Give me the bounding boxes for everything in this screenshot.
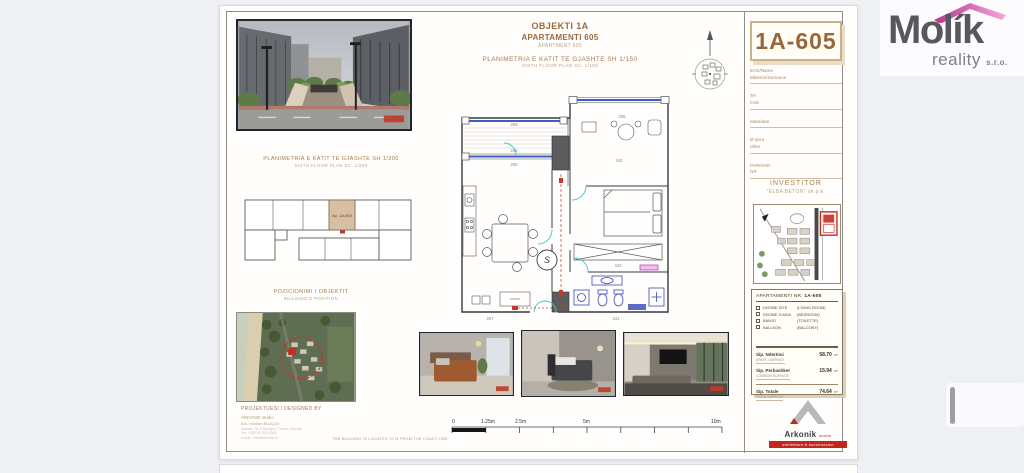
arkonik-banner: arkitekture & konstruksion [769, 441, 847, 448]
main-floor-plan: S [456, 94, 676, 336]
titleblock-divider [744, 12, 745, 453]
checkbox[interactable] [756, 306, 760, 310]
scale-bar: 0 1.25m 2.5m 5m 10m [451, 413, 723, 439]
svg-text:342: 342 [615, 263, 623, 268]
card-divider [756, 384, 838, 385]
checkbox[interactable] [756, 312, 760, 316]
svg-text:256: 256 [511, 162, 519, 167]
svg-text:255: 255 [619, 114, 627, 119]
surface-row-common: Sip. Perbashket COMMON SURFACE 15.94m² [756, 368, 838, 380]
apartment-title: APARTAMENTI 605 [440, 33, 680, 42]
form-field-name[interactable]: Emri/Name Mbiemri/Surname [750, 68, 842, 84]
sheet-header: OBJEKTI 1A APARTAMENTI 605 APARTMENT 605… [440, 21, 680, 69]
room-row-living: DHOME DITE (LIVING ROOM) [756, 305, 838, 310]
viewer-background: PLANIMETRIA E KATIT TE GJASHTE SH 1/200 … [0, 0, 1024, 472]
form-field-other[interactable]: të tjera other [750, 137, 842, 153]
checkbox[interactable] [756, 325, 760, 329]
svg-text:256: 256 [511, 148, 519, 153]
form-field-date[interactable]: data/date [750, 119, 842, 129]
svg-text:2.5m: 2.5m [515, 419, 526, 425]
surface-row-apartment: Sip. Ndertimi APART. SURFACE 58.70m² [756, 352, 838, 364]
svg-text:257: 257 [487, 316, 495, 321]
floating-panel [946, 383, 1024, 427]
svg-text:10m: 10m [711, 419, 721, 425]
keyplan-drawing: Ap. 1A-605 [241, 192, 417, 270]
svg-text:341: 341 [613, 316, 621, 321]
room-row-toilette: BANJO (TOILETTE) [756, 318, 838, 323]
drawing-sheet: PLANIMETRIA E KATIT TE GJASHTE SH 1/200 … [219, 5, 858, 460]
keyplan-title: PLANIMETRIA E KATIT TE GJASHTE SH 1/200 … [226, 156, 436, 168]
interior-photo-bedroom-2 [521, 330, 616, 397]
room-row-bedroom: DHOME GJUMI (BEDROOM) [756, 312, 838, 317]
interior-photo-bedroom-1 [419, 332, 514, 396]
unit-code-tag: 1A-605 [750, 21, 842, 61]
keyplan-unit-label: Ap. 1A-605 [332, 213, 353, 218]
project-title: OBJEKTI 1A [440, 21, 680, 31]
position-title: POZICIONIMI I OBJEKTIT BUILDING'S POSITI… [236, 289, 386, 301]
investor-site-plan [753, 204, 841, 284]
svg-text:342: 342 [616, 158, 624, 163]
room-row-balcony: BALLKON (BALCONY) [756, 325, 838, 330]
svg-text:1.25m: 1.25m [481, 419, 495, 425]
checkbox[interactable] [756, 319, 760, 323]
north-arrow-icon [690, 28, 730, 98]
interior-photo-living-room [623, 332, 729, 396]
form-field-parking[interactable]: PARKING NR [750, 163, 842, 179]
satellite-image [236, 312, 356, 402]
client-form: Emri/Name Mbiemri/Surname Tel mob data/d… [750, 68, 842, 179]
card-title: APARTAMENTI NR. 1A-605 [756, 294, 838, 302]
svg-text:0: 0 [452, 419, 455, 425]
building-render-photo [236, 19, 412, 131]
scrollbar-thumb[interactable] [950, 387, 955, 424]
arkonik-triangle-icon [788, 399, 828, 425]
arkonik-logo: Arkonik studio arkitekture & konstruksio… [769, 399, 847, 448]
form-field-tel[interactable]: Tel mob [750, 93, 842, 109]
investor-block: INVESTITOR “ELBA BETON” sh.p.k. [747, 180, 845, 195]
svg-text:259: 259 [511, 122, 519, 127]
molik-reality-logo: Molík reality s.r.o. [880, 0, 1024, 76]
card-divider [756, 346, 838, 348]
apartment-data-card: APARTAMENTI NR. 1A-605 DHOME DITE (LIVIN… [751, 289, 843, 395]
plan-symbol-s: S [544, 255, 550, 265]
svg-text:5m: 5m [583, 419, 590, 425]
